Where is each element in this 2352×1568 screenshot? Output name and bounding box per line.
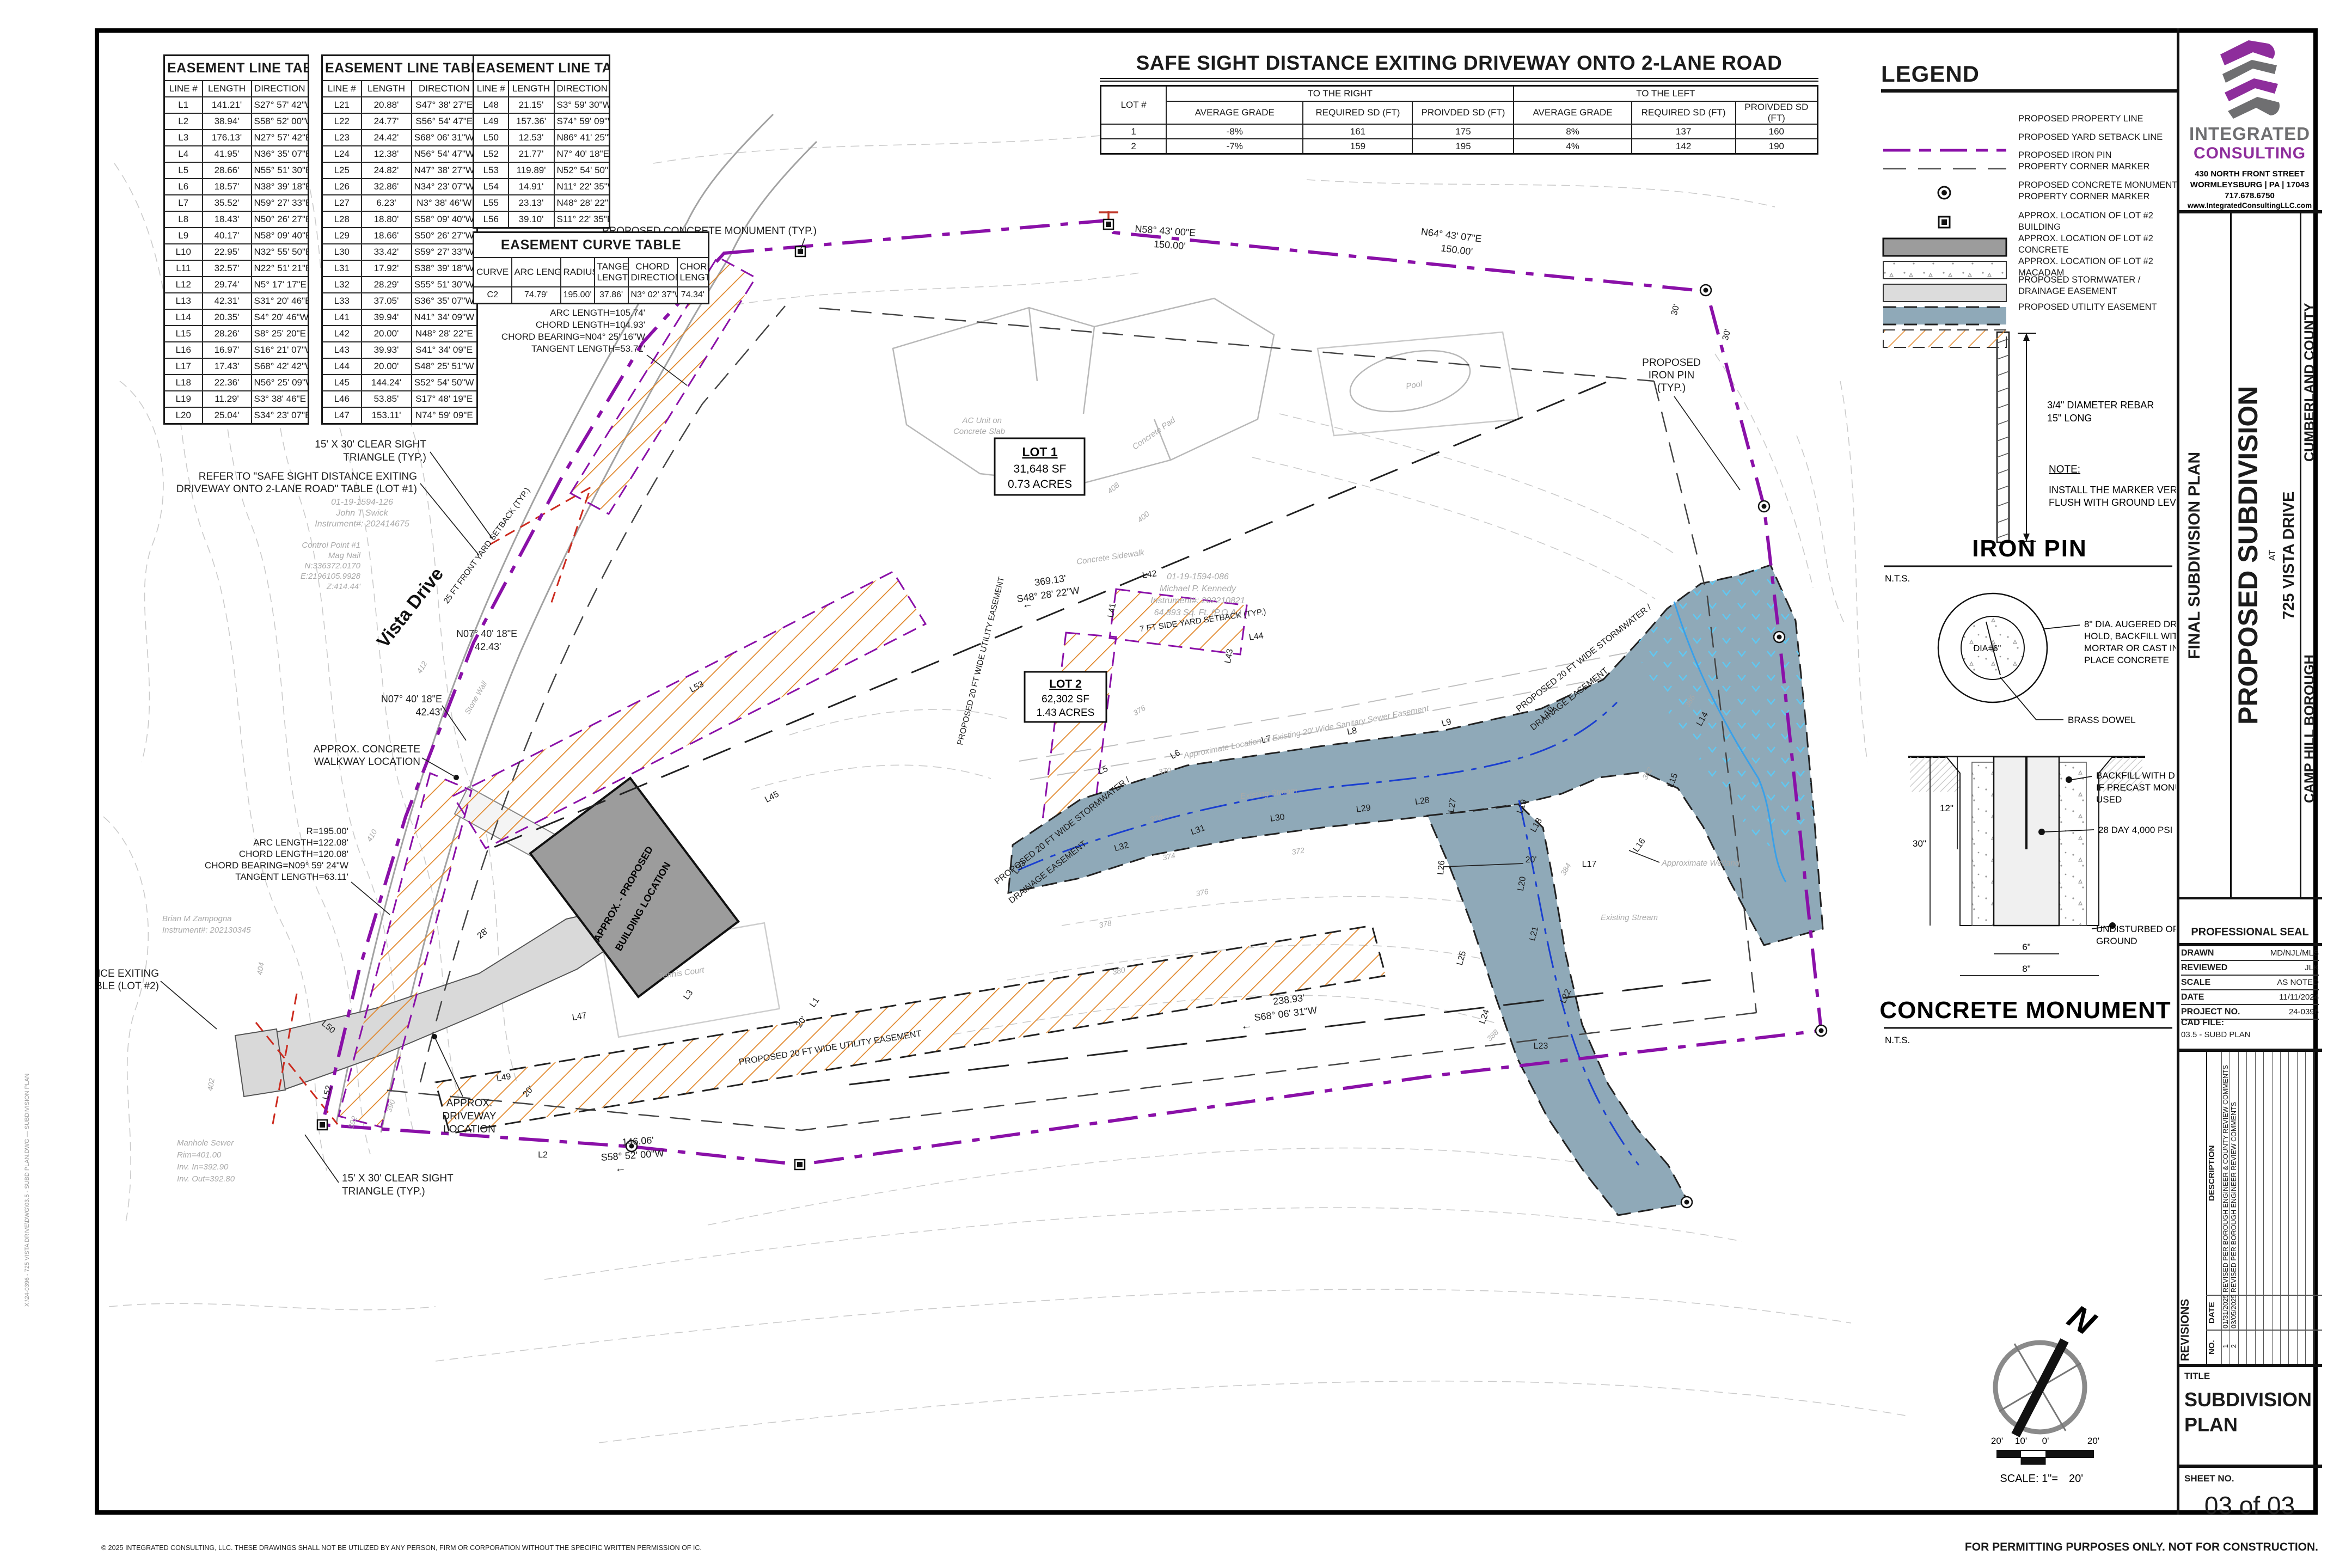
table-cell: 42.31'	[203, 293, 252, 309]
col-header: LINE #	[164, 81, 203, 97]
table-cell: 33.42'	[362, 244, 412, 260]
table-title: EASEMENT LINE TABLE	[164, 56, 309, 81]
field-value: 11/11/2024	[2279, 993, 2319, 1002]
legend-label: PROPOSED IRON PINPROPERTY CORNER MARKER	[2018, 150, 2149, 173]
legend-label: PROPOSED YARD SETBACK LINE	[2018, 132, 2163, 143]
table-cell: L18	[164, 375, 203, 391]
sheet-number-block: SHEET NO. 03 of 03	[2184, 1473, 2315, 1520]
table-cell: 157.36'	[509, 113, 554, 130]
company-logo: INTEGRATED CONSULTING 430 NORTH FRONT ST…	[2178, 28, 2322, 211]
table-row: L1141.21'S27° 57' 42"W	[164, 97, 309, 113]
table-cell: L24	[322, 146, 362, 162]
table-row: L1342.31'S31° 20' 46"E	[164, 293, 309, 309]
table-cell: 39.94'	[362, 309, 412, 326]
table-cell: 8%	[1514, 124, 1631, 139]
file-path-margin-text: X:\24-0396 - 725 VISTA DRIVE\DWG\03.5 - …	[24, 436, 30, 1307]
table-cell: 142	[1632, 139, 1736, 154]
revision-column	[2297, 1052, 2305, 1364]
titleblock-rule	[2178, 1465, 2322, 1468]
table-cell: L11	[164, 260, 203, 277]
col-header: PROIVDED SD (FT)	[1736, 101, 1818, 124]
table-cell: 175	[1412, 124, 1514, 139]
table-row: L5414.91'N11° 22' 35"W	[474, 179, 610, 195]
table-cell: N22° 51' 21"E	[252, 260, 309, 277]
table-row: L5639.10'S11° 22' 35"E	[474, 211, 610, 228]
table-cell: L47	[322, 407, 362, 424]
table-cell: 28.29'	[362, 277, 412, 293]
table-cell: 12.53'	[509, 130, 554, 146]
table-cell: N48° 28' 22"E	[554, 195, 610, 211]
field-label: DATE	[2181, 993, 2204, 1002]
table-cell: L9	[164, 228, 203, 244]
legend-label: APPROX. LOCATION OF LOT #2 BUILDING	[2018, 210, 2178, 233]
table-cell: N48° 28' 22"E	[412, 326, 477, 342]
table-row: L1717.43'S68° 42' 42"W	[164, 358, 309, 375]
col-header: RADIUS	[561, 258, 595, 287]
table-cell: 21.77'	[509, 146, 554, 162]
sheet-title-block: TITLE SUBDIVISION PLAN	[2184, 1371, 2312, 1436]
field-value: AS NOTED	[2277, 978, 2319, 987]
table-cell: S36° 35' 07"W	[412, 293, 477, 309]
table-cell: S68° 06' 31"W	[412, 130, 477, 146]
field-label: REVIEWED	[2181, 963, 2227, 973]
professional-seal-box: PROFESSIONAL SEAL	[2178, 899, 2322, 943]
col-header: AVERAGE GRADE	[1514, 101, 1631, 124]
company-phone: 717.678.6750	[2225, 191, 2275, 200]
revision-cell: 2	[2230, 1331, 2238, 1362]
revision-cell: 03/05/2025	[2230, 1296, 2238, 1328]
revisions-block: REVISIONS DESCRIPTION DATE NO. REVISED P…	[2178, 1052, 2322, 1364]
table-cell: L56	[474, 211, 509, 228]
table-row: 1-8%1611758%137160	[1101, 124, 1818, 139]
easement-line-table-3: EASEMENT LINE TABLE LINE #LENGTHDIRECTIO…	[473, 54, 610, 229]
company-name-2: CONSULTING	[2194, 144, 2306, 162]
table-cell: S50° 26' 27"W	[412, 228, 477, 244]
rev-header-no: NO.	[2207, 1331, 2221, 1364]
sheet-no-label: SHEET NO.	[2184, 1473, 2315, 1484]
table-cell: L30	[322, 244, 362, 260]
table-cell: S58° 52' 00"W	[252, 113, 309, 130]
table-cell: N74° 59' 09"E	[412, 407, 477, 424]
field-value: 24-0396	[2289, 1007, 2319, 1016]
table-cell: 28.26'	[203, 326, 252, 342]
table-cell: 21.15'	[509, 97, 554, 113]
table-cell: 1	[1101, 124, 1167, 139]
table-cell: 53.85'	[362, 391, 412, 407]
table-cell: 141.21'	[203, 97, 252, 113]
table-cell: 153.11'	[362, 407, 412, 424]
sheet-number: 03 of 03	[2184, 1491, 2315, 1520]
project-title: PROPOSED SUBDIVISION	[2232, 213, 2266, 897]
table-cell: N3° 38' 46"W	[412, 195, 477, 211]
legend-building-swatch	[1883, 238, 2006, 256]
group-header: TO THE LEFT	[1514, 86, 1817, 102]
company-address-2: WORMLEYSBURG | PA | 17043	[2190, 180, 2309, 189]
table-row: L940.17'N58° 09' 40"E	[164, 228, 309, 244]
county-label: CUMBERLAND COUNTY	[2302, 213, 2320, 551]
table-cell: S34° 23' 07"E	[252, 407, 309, 424]
titleblock-fields: DRAWNMD/NJL/MLSREVIEWEDJLKSCALEAS NOTEDD…	[2178, 946, 2322, 1020]
table-cell: L20	[164, 407, 203, 424]
table-cell: 190	[1736, 139, 1818, 154]
table-cell: -8%	[1166, 124, 1303, 139]
table-cell: 18.43'	[203, 211, 252, 228]
table-row: L2412.38'N56° 54' 47"W	[322, 146, 477, 162]
table-cell: L31	[322, 260, 362, 277]
table-cell: 39.10'	[509, 211, 554, 228]
field-value: MD/NJL/MLS	[2270, 948, 2319, 958]
col-header: CHORD DIRECTION	[628, 258, 677, 287]
table-cell: 18.66'	[362, 228, 412, 244]
table-cell: 20.88'	[362, 97, 412, 113]
table-cell: 119.89'	[509, 162, 554, 179]
col-header: DIRECTION	[412, 81, 477, 97]
table-cell: L22	[322, 113, 362, 130]
table-cell: L55	[474, 195, 509, 211]
table-cell: S27° 57' 42"W	[252, 97, 309, 113]
table-cell: L1	[164, 97, 203, 113]
table-cell: S11° 22' 35"E	[554, 211, 610, 228]
revision-columns: REVISED PER BOROUGH ENGINEER & COUNTY RE…	[2221, 1052, 2322, 1364]
logo-chevron-4	[2228, 97, 2280, 119]
col-header: DIRECTION	[252, 81, 309, 97]
table-cell: L54	[474, 179, 509, 195]
table-cell: -7%	[1166, 139, 1303, 154]
table-cell: S17° 48' 19"E	[412, 391, 477, 407]
col-header: LINE #	[322, 81, 362, 97]
table-cell: 14.91'	[509, 179, 554, 195]
table-cell: L29	[322, 228, 362, 244]
table-row: L2224.77'S56° 54' 47"E	[322, 113, 477, 130]
table-cell: 28.66'	[203, 162, 252, 179]
table-row: L1022.95'N32° 55' 50"E	[164, 244, 309, 260]
easement-curve-table: EASEMENT CURVE TABLE CURVE # ARC LENGTH …	[473, 231, 709, 304]
table-cell: N47° 38' 27"W	[412, 162, 477, 179]
table-cell: L46	[322, 391, 362, 407]
table-cell: 137	[1632, 124, 1736, 139]
table-cell: 160	[1736, 124, 1818, 139]
title-label: TITLE	[2184, 1371, 2312, 1382]
revision-column	[2263, 1052, 2271, 1364]
col-header: REQUIRED SD (FT)	[1632, 101, 1736, 124]
col-header: LINE #	[474, 81, 509, 97]
table-cell: 159	[1303, 139, 1412, 154]
easement-line-table-1: EASEMENT LINE TABLE LINE #LENGTHDIRECTIO…	[163, 54, 309, 425]
table-row: L49157.36'S74° 59' 09"W	[474, 113, 610, 130]
table-row: L618.57'N38° 39' 18"E	[164, 179, 309, 195]
table-cell: S3° 38' 46"E	[252, 391, 309, 407]
col-header: TANGENT LENGTH	[595, 258, 628, 287]
legend-title: LEGEND	[1881, 61, 2178, 93]
cad-file-label: CAD FILE:	[2181, 1018, 2319, 1028]
table-cell: L2	[164, 113, 203, 130]
table-row: L2818.80'S58° 09' 40"W	[322, 211, 477, 228]
table-cell: 4%	[1514, 139, 1631, 154]
table-cell: 17.43'	[203, 358, 252, 375]
col-header: DIRECTION	[554, 81, 610, 97]
table-cell: 32.86'	[362, 179, 412, 195]
table-row: L4139.94'N41° 34' 09"W	[322, 309, 477, 326]
table-cell: 6.23'	[362, 195, 412, 211]
logo-chevron-1	[2220, 40, 2275, 65]
table-cell: L26	[322, 179, 362, 195]
table-cell: 24.42'	[362, 130, 412, 146]
table-row: L735.52'N59° 27' 33"E	[164, 195, 309, 211]
table-cell: 11.29'	[203, 391, 252, 407]
table-cell: N86° 41' 25"W	[554, 130, 610, 146]
easement-line-table-2: EASEMENT LINE TABLE LINE #LENGTHDIRECTIO…	[321, 54, 478, 425]
legend-label: PROPOSED STORMWATER /DRAINAGE EASEMENT	[2018, 274, 2140, 297]
revision-column	[2314, 1052, 2322, 1364]
table-cell: S31° 20' 46"E	[252, 293, 309, 309]
table-row: L238.94'S58° 52' 00"W	[164, 113, 309, 130]
sheet-title-2: PLAN	[2184, 1413, 2312, 1436]
revision-cell: REVISED PER BOROUGH ENGINEER REVIEW COMM…	[2230, 1054, 2238, 1293]
revision-column	[2255, 1052, 2263, 1364]
table-cell: L21	[322, 97, 362, 113]
table-cell: L50	[474, 130, 509, 146]
col-header: LENGTH	[203, 81, 252, 97]
copyright-note: © 2025 INTEGRATED CONSULTING, LLC. THESE…	[101, 1544, 702, 1552]
table-cell: 74.79'	[512, 287, 561, 304]
table-row: L5012.53'N86° 41' 25"W	[474, 130, 610, 146]
company-address-1: 430 NORTH FRONT STREET	[2195, 169, 2305, 179]
table-cell: N5° 17' 17"E	[252, 277, 309, 293]
company-website: www.IntegratedConsultingLLC.com	[2187, 201, 2312, 210]
project-site: 725 VISTA DRIVE	[2280, 213, 2299, 897]
table-row: L4220.00'N48° 28' 22"E	[322, 326, 477, 342]
table-cell: L44	[322, 358, 362, 375]
table-cell: L8	[164, 211, 203, 228]
table-row: L818.43'N50° 26' 27"E	[164, 211, 309, 228]
revision-cell: 1	[2222, 1331, 2230, 1362]
cad-file-value: 03.5 - SUBD PLAN	[2181, 1030, 2319, 1039]
plan-sheet: LOT 1 31,648 SF 0.73 ACRES LOT 2 62,302 …	[0, 0, 2352, 1568]
legend: LEGEND PROPOSED PROPERTY LINE PROPOSED Y…	[1881, 61, 2178, 379]
table-cell: N27° 57' 42"E	[252, 130, 309, 146]
table-cell: L43	[322, 342, 362, 358]
col-header: CURVE #	[474, 258, 512, 287]
table-cell: S55° 51' 30"W	[412, 277, 477, 293]
sight-table-title: SAFE SIGHT DISTANCE EXITING DRIVEWAY ONT…	[1100, 52, 1818, 82]
table-cell: 24.82'	[362, 162, 412, 179]
table-row: L2524.82'N47° 38' 27"W	[322, 162, 477, 179]
table-cell: 2	[1101, 139, 1167, 154]
table-cell: 23.13'	[509, 195, 554, 211]
table-cell: N56° 54' 47"W	[412, 146, 477, 162]
table-cell: N41° 34' 09"W	[412, 309, 477, 326]
field-label: DRAWN	[2181, 948, 2214, 958]
table-row: L2918.66'S50° 26' 27"W	[322, 228, 477, 244]
table-cell: 39.93'	[362, 342, 412, 358]
plan-type-label: FINAL SUBDIVISION PLAN	[2185, 213, 2225, 897]
revision-column	[2246, 1052, 2255, 1364]
table-row: L1616.97'S16° 21' 07"W	[164, 342, 309, 358]
legend-label: PROPOSED CONCRETE MONUMENTPROPERTY CORNE…	[2018, 180, 2177, 203]
table-cell: L3	[164, 130, 203, 146]
table-cell: S48° 25' 51"W	[412, 358, 477, 375]
table-cell: 195	[1412, 139, 1514, 154]
legend-label: APPROX. LOCATION OF LOT #2 CONCRETE	[2018, 233, 2178, 256]
table-row: L276.23'N3° 38' 46"W	[322, 195, 477, 211]
table-row: L5221.77'N7° 40' 18"E	[474, 146, 610, 162]
table-cell: L28	[322, 211, 362, 228]
table-cell: S52° 54' 50"W	[412, 375, 477, 391]
table-cell: 20.35'	[203, 309, 252, 326]
table-cell: N32° 55' 50"E	[252, 244, 309, 260]
table-cell: 12.38'	[362, 146, 412, 162]
revision-cell: 01/31/2025	[2222, 1296, 2230, 1328]
sheet-title-1: SUBDIVISION	[2184, 1388, 2312, 1411]
col-header: LOT #	[1101, 86, 1167, 125]
table-cell: L14	[164, 309, 203, 326]
table-cell: N52° 54' 50"E	[554, 162, 610, 179]
logo-chevron-2	[2222, 60, 2277, 83]
table-row: L4821.15'S3° 59' 30"W	[474, 97, 610, 113]
table-cell: S41° 34' 09"E	[412, 342, 477, 358]
revision-column: REVISED PER BOROUGH ENGINEER & COUNTY RE…	[2221, 1052, 2229, 1364]
group-header: TO THE RIGHT	[1166, 86, 1514, 102]
table-row: L47153.11'N74° 59' 09"E	[322, 407, 477, 424]
table-row: L2025.04'S34° 23' 07"E	[164, 407, 309, 424]
titleblock-rule	[2178, 1364, 2322, 1367]
table-title: EASEMENT LINE TABLE	[322, 56, 477, 81]
table-row: L1528.26'S8° 25' 20"E	[164, 326, 309, 342]
table-cell: 176.13'	[203, 130, 252, 146]
cad-file-field: CAD FILE: 03.5 - SUBD PLAN	[2181, 1016, 2319, 1039]
table-cell: L13	[164, 293, 203, 309]
table-cell: L12	[164, 277, 203, 293]
table-cell: 161	[1303, 124, 1412, 139]
table-title: EASEMENT CURVE TABLE	[474, 232, 709, 258]
table-cell: S3° 59' 30"W	[554, 97, 610, 113]
table-cell: S68° 42' 42"W	[252, 358, 309, 375]
table-cell: N36° 35' 07"E	[252, 146, 309, 162]
table-cell: 144.24'	[362, 375, 412, 391]
table-row: L3228.29'S55° 51' 30"W	[322, 277, 477, 293]
table-row: L3176.13'N27° 57' 42"E	[164, 130, 309, 146]
table-cell: 195.00'	[561, 287, 595, 304]
table-title: EASEMENT LINE TABLE	[474, 56, 610, 81]
table-cell: L53	[474, 162, 509, 179]
table-cell: L5	[164, 162, 203, 179]
table-cell: N7° 40' 18"E	[554, 146, 610, 162]
table-cell: 29.74'	[203, 277, 252, 293]
table-cell: L32	[322, 277, 362, 293]
table-cell: L25	[322, 162, 362, 179]
table-cell: 74.34'	[677, 287, 709, 304]
table-row: L53119.89'N52° 54' 50"E	[474, 162, 610, 179]
table-cell: 17.92'	[362, 260, 412, 277]
col-header: CHORD LENGTH	[677, 258, 709, 287]
logo-chevron-3	[2225, 78, 2278, 101]
legend-macadam-swatch	[1883, 284, 2006, 302]
table-cell: 37.86'	[595, 287, 628, 304]
table-row: L3033.42'S59° 27' 33"W	[322, 244, 477, 260]
col-header: AVERAGE GRADE	[1166, 101, 1303, 124]
legend-label: PROPOSED UTILITY EASEMENT	[2018, 302, 2157, 313]
col-header: LENGTH	[362, 81, 412, 97]
table-row: L1132.57'N22° 51' 21"E	[164, 260, 309, 277]
permit-disclaimer: FOR PERMITTING PURPOSES ONLY. NOT FOR CO…	[1361, 1541, 2318, 1554]
table-cell: S47° 38' 27"E	[412, 97, 477, 113]
table-cell: L6	[164, 179, 203, 195]
col-header: PROIVDED SD (FT)	[1412, 101, 1514, 124]
revision-column: REVISED PER BOROUGH ENGINEER REVIEW COMM…	[2229, 1052, 2238, 1364]
table-cell: 41.95'	[203, 146, 252, 162]
table-row: L441.95'N36° 35' 07"E	[164, 146, 309, 162]
table-row: L4653.85'S17° 48' 19"E	[322, 391, 477, 407]
legend-utility-swatch	[1883, 330, 2006, 347]
rev-header-description: DESCRIPTION	[2207, 1052, 2221, 1295]
revision-column	[2238, 1052, 2246, 1364]
table-cell: L4	[164, 146, 203, 162]
table-cell: N55° 51' 30"E	[252, 162, 309, 179]
field-label: SCALE	[2181, 978, 2210, 988]
table-cell: L7	[164, 195, 203, 211]
table-cell: N58° 09' 40"E	[252, 228, 309, 244]
table-row: L1822.36'N56° 25' 09"W	[164, 375, 309, 391]
col-header: LENGTH	[509, 81, 554, 97]
titleblock-rule	[2230, 213, 2232, 897]
table-cell: 32.57'	[203, 260, 252, 277]
table-cell: 18.57'	[203, 179, 252, 195]
table-cell: N3° 02' 37"W	[628, 287, 677, 304]
legend-stormwater-swatch	[1883, 307, 2006, 324]
table-cell: L16	[164, 342, 203, 358]
table-row: L3337.05'S36° 35' 07"W	[322, 293, 477, 309]
col-header: REQUIRED SD (FT)	[1303, 101, 1412, 124]
table-row: L5523.13'N48° 28' 22"E	[474, 195, 610, 211]
table-cell: 20.00'	[362, 326, 412, 342]
table-row: L4339.93'S41° 34' 09"E	[322, 342, 477, 358]
table-cell: L27	[322, 195, 362, 211]
titleblock-field-row: REVIEWEDJLK	[2181, 961, 2319, 976]
titleblock-field-row: DATE11/11/2024	[2181, 990, 2319, 1005]
table-cell: S16° 21' 07"W	[252, 342, 309, 358]
table-cell: 22.95'	[203, 244, 252, 260]
project-at: AT	[2267, 213, 2280, 897]
table-row: L4420.00'S48° 25' 51"W	[322, 358, 477, 375]
table-cell: 38.94'	[203, 113, 252, 130]
borough-label: CAMP HILL BOROUGH	[2302, 561, 2320, 897]
revision-cell: REVISED PER BOROUGH ENGINEER & COUNTY RE…	[2222, 1054, 2230, 1293]
field-label: PROJECT NO.	[2181, 1007, 2240, 1017]
table-cell: N38° 39' 18"E	[252, 179, 309, 195]
table-cell: 22.36'	[203, 375, 252, 391]
revision-column	[2288, 1052, 2296, 1364]
table-cell: N11° 22' 35"W	[554, 179, 610, 195]
table-row: L1420.35'S4° 20' 46"W	[164, 309, 309, 326]
table-cell: 24.77'	[362, 113, 412, 130]
sight-distance-table: SAFE SIGHT DISTANCE EXITING DRIVEWAY ONT…	[1100, 52, 1818, 155]
titleblock-field-row: DRAWNMD/NJL/MLS	[2181, 946, 2319, 961]
table-cell: L17	[164, 358, 203, 375]
field-value: JLK	[2305, 963, 2319, 972]
table-cell: S59° 27' 33"W	[412, 244, 477, 260]
table-cell: 16.97'	[203, 342, 252, 358]
table-row: C274.79'195.00'37.86'N3° 02' 37"W74.34'	[474, 287, 709, 304]
table-row: L528.66'N55° 51' 30"E	[164, 162, 309, 179]
table-cell: 25.04'	[203, 407, 252, 424]
table-cell: S4° 20' 46"W	[252, 309, 309, 326]
table-cell: N34° 23' 07"W	[412, 179, 477, 195]
table-cell: L33	[322, 293, 362, 309]
table-row: L1229.74'N5° 17' 17"E	[164, 277, 309, 293]
table-row: 2-7%1591954%142190	[1101, 139, 1818, 154]
titleblock-field-row: SCALEAS NOTED	[2181, 976, 2319, 990]
table-cell: L15	[164, 326, 203, 342]
